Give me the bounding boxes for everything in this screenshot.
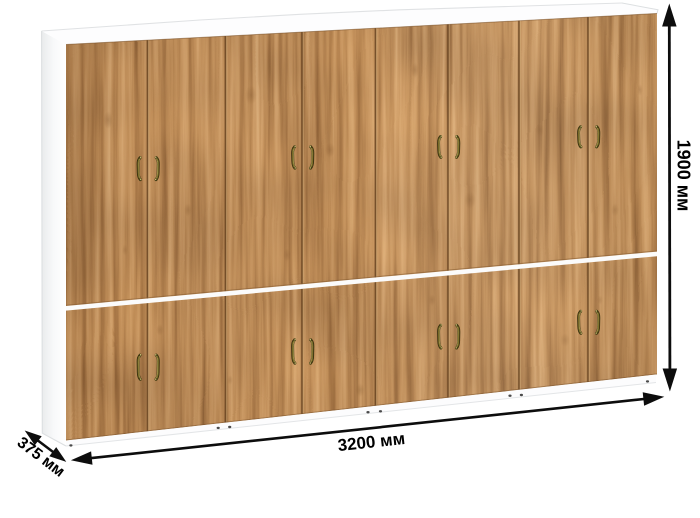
svg-text:1900 мм: 1900 мм (674, 140, 694, 212)
